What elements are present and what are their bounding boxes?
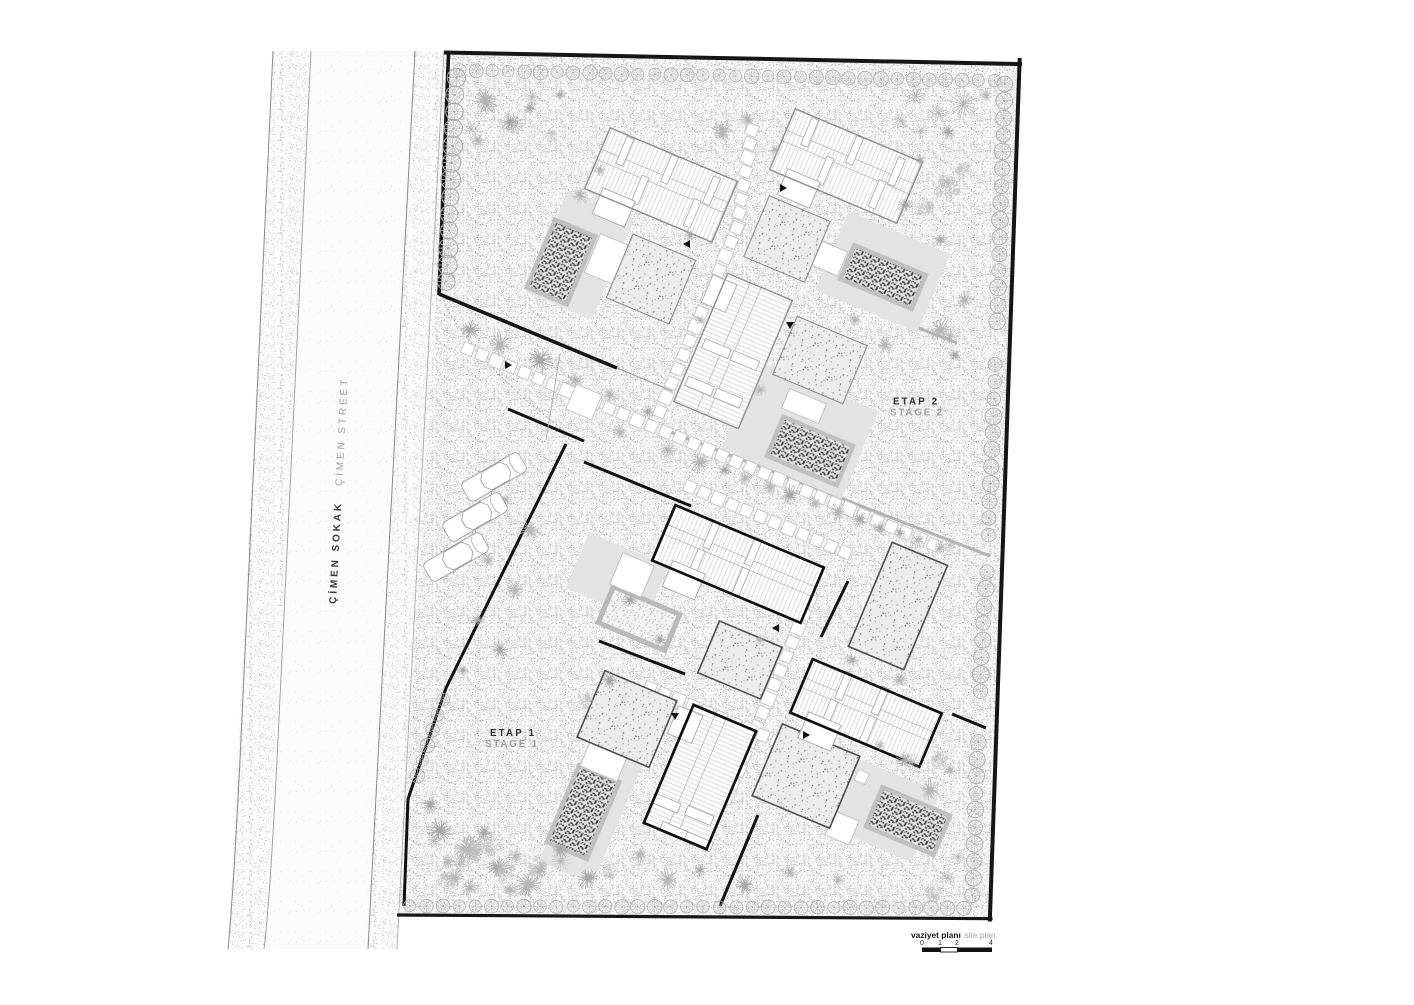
svg-text:1: 1 — [938, 940, 942, 947]
svg-text:STAGE 2: STAGE 2 — [890, 408, 944, 419]
svg-text:ETAP 2: ETAP 2 — [893, 397, 939, 408]
svg-text:2: 2 — [955, 940, 959, 947]
svg-text:0: 0 — [920, 940, 924, 947]
svg-text:4: 4 — [989, 940, 993, 947]
svg-text:site plan: site plan — [965, 930, 997, 940]
svg-text:vaziyet planı: vaziyet planı — [911, 930, 961, 940]
svg-text:ETAP 1: ETAP 1 — [490, 728, 536, 739]
svg-text:STAGE 1: STAGE 1 — [485, 739, 539, 750]
